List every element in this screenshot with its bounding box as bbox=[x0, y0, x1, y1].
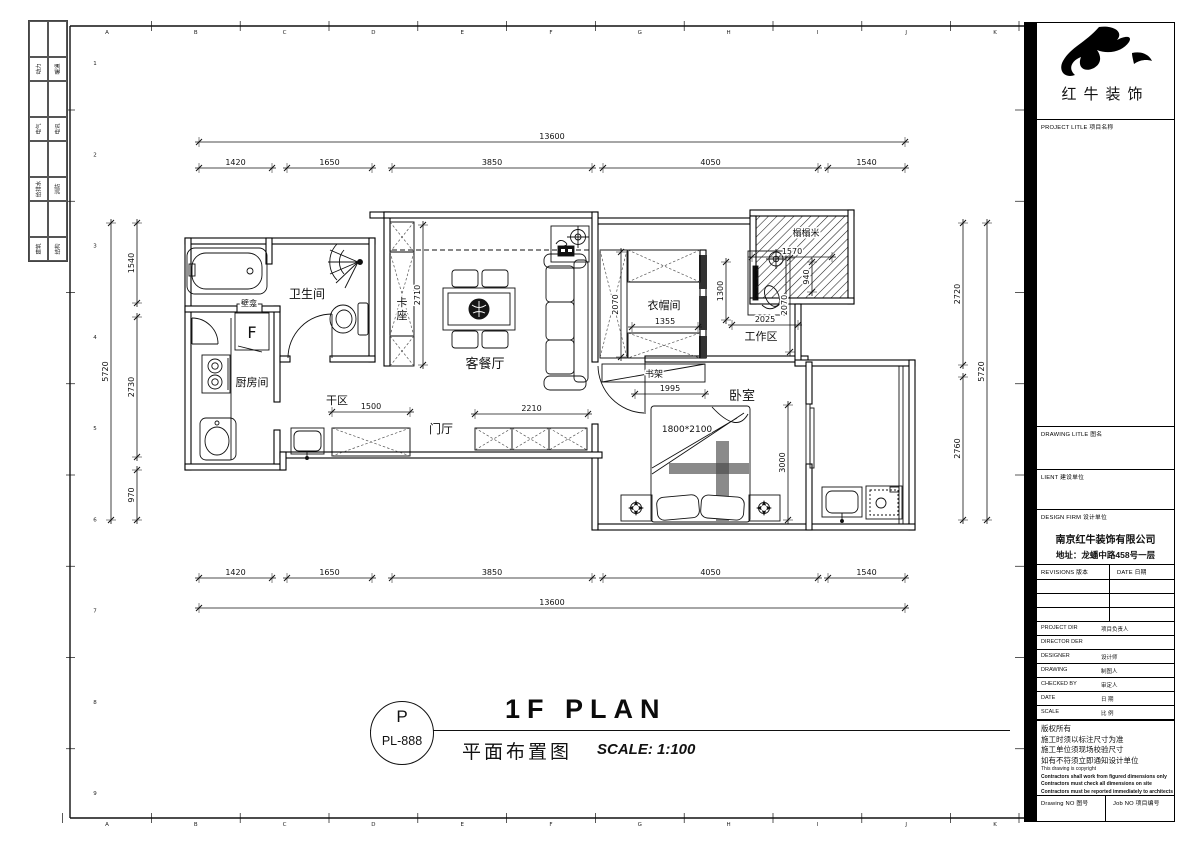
dimension-label: 2710 bbox=[413, 285, 422, 305]
room-label: F bbox=[247, 323, 256, 342]
plan-title: 1F PLAN bbox=[505, 694, 667, 725]
room-label: 衣帽间 bbox=[648, 298, 681, 312]
ruler-letter: A bbox=[105, 30, 109, 36]
dimension: 2730 bbox=[127, 313, 142, 461]
room-label: 客餐厅 bbox=[465, 356, 504, 372]
notes-chinese: 版权所有施工时须以标注尺寸为准施工单位须现场校验尺寸如有不符须立即通知设计单位 bbox=[1037, 721, 1174, 766]
note-line: 施工单位须现场校验尺寸 bbox=[1041, 745, 1174, 756]
bathtub bbox=[187, 248, 267, 294]
logo-cell: 红牛装饰 bbox=[1037, 23, 1174, 119]
dimension-label: 3850 bbox=[482, 158, 502, 167]
design-firm-label: DESIGN FIRM 设计单位 bbox=[1037, 510, 1174, 521]
drawing-sheet: 1360014201650385040501540142016503850405… bbox=[0, 0, 1200, 845]
nightstand bbox=[749, 495, 780, 521]
bed bbox=[651, 406, 750, 522]
dimension-label: 2210 bbox=[521, 404, 541, 413]
room-label: 工作区 bbox=[745, 330, 778, 343]
ruler-number: 2 bbox=[93, 152, 97, 158]
ceiling-lamp-icon bbox=[567, 226, 589, 248]
signoff-rows: PROJECT DIR项目负责人DIRECTOR DERDESIGNER设计师D… bbox=[1037, 621, 1174, 719]
strip-cell: 电讯 bbox=[48, 117, 67, 141]
revision-row bbox=[1037, 607, 1174, 621]
strip-blank-row bbox=[29, 21, 67, 57]
dimension-label: 2720 bbox=[953, 284, 962, 304]
signoff-row: SCALE比 例 bbox=[1037, 705, 1174, 719]
dimension: 1540 bbox=[824, 568, 909, 583]
ruler-letter: K bbox=[993, 30, 997, 36]
ruler-letter: F bbox=[549, 822, 552, 828]
room-label: 干区 bbox=[326, 394, 348, 407]
signoff-row: CHECKED BY审定人 bbox=[1037, 677, 1174, 691]
strip-cell: 消防 bbox=[48, 177, 67, 201]
ruler-number: 1 bbox=[93, 61, 97, 67]
plan-subtitle: 平面布置图 bbox=[462, 737, 572, 764]
strip-label-row: 电气电讯 bbox=[29, 117, 67, 141]
ruler-letter: B bbox=[194, 30, 198, 36]
drawing-title-cell: DRAWING LITLE 图名 bbox=[1037, 426, 1174, 469]
brand-name: 红牛装饰 bbox=[1037, 83, 1174, 104]
dimension-label: 5720 bbox=[977, 361, 986, 381]
dimension: 2760 bbox=[953, 373, 968, 524]
revisions-header: REVISIONS 版本 DATE 日期 bbox=[1037, 564, 1174, 579]
dimension-label: 1650 bbox=[319, 158, 339, 167]
drawing-no-label: Drawing NO 图号 bbox=[1037, 796, 1088, 807]
dimension-label: 2070 bbox=[780, 295, 789, 315]
dimension-label: 1650 bbox=[319, 568, 339, 577]
dimension: 1995 bbox=[631, 384, 709, 399]
sheet-right-band bbox=[1024, 22, 1036, 822]
ruler-letter: D bbox=[371, 30, 375, 36]
dimension-label: 1300 bbox=[716, 281, 725, 301]
dimension: 3850 bbox=[388, 568, 596, 583]
project-title-label: PROJECT LITLE 项目名称 bbox=[1037, 120, 1174, 131]
rednbull-logo-icon bbox=[1037, 23, 1176, 81]
strip-label-row: 建筑结构 bbox=[29, 237, 67, 261]
note-line-en: This drawing is copyright bbox=[1037, 766, 1174, 774]
dimension: 2070 bbox=[611, 248, 626, 361]
room-label: 书架 bbox=[645, 369, 663, 380]
plan-code-letter: P bbox=[371, 707, 433, 727]
ruler-number: 5 bbox=[93, 426, 97, 432]
dimension-label: 3000 bbox=[778, 452, 787, 472]
dimension: 5720 bbox=[101, 219, 116, 524]
dimension-label: 13600 bbox=[539, 598, 564, 607]
client-cell: LIENT 建设单位 bbox=[1037, 469, 1174, 509]
dimension-label: 1995 bbox=[660, 384, 680, 393]
room-label: 卧室 bbox=[729, 388, 755, 404]
ruler-letter: H bbox=[727, 822, 731, 828]
ruler-letter: H bbox=[727, 30, 731, 36]
dimension: 2025 bbox=[728, 315, 802, 330]
ruler-letter: E bbox=[460, 822, 464, 828]
plan-code-stamp: P PL-888 bbox=[370, 701, 434, 765]
dimension: 3850 bbox=[388, 158, 596, 173]
ruler-letter: G bbox=[638, 822, 642, 828]
ruler-letter: J bbox=[904, 30, 907, 36]
signoff-row: PROJECT DIR项目负责人 bbox=[1037, 621, 1174, 635]
strip-cell: 暖通 bbox=[48, 57, 67, 81]
dimension: 2720 bbox=[953, 219, 968, 369]
date-col-label: DATE 日期 bbox=[1113, 565, 1147, 576]
strip-cell: 动力 bbox=[29, 57, 48, 81]
revision-row bbox=[1037, 579, 1174, 593]
dimension: 1650 bbox=[283, 568, 376, 583]
dimension: 5720 bbox=[977, 219, 992, 524]
dimension: 1540 bbox=[127, 219, 142, 307]
nightstand bbox=[621, 495, 652, 521]
dimension-label: 5720 bbox=[101, 361, 110, 381]
ruler-letter: I bbox=[817, 822, 819, 828]
plan-code: PL-888 bbox=[371, 734, 433, 748]
dimension: 13600 bbox=[195, 132, 909, 147]
dimension: 2210 bbox=[471, 404, 592, 419]
dimension-label: 1420 bbox=[225, 158, 245, 167]
ruler-letter: J bbox=[904, 822, 907, 828]
revisions-label: REVISIONS 版本 bbox=[1037, 565, 1088, 576]
washing-machine bbox=[866, 486, 902, 519]
design-firm-cell: DESIGN FIRM 设计单位 南京红牛装饰有限公司 地址：龙蟠中路458号一… bbox=[1037, 509, 1174, 564]
dimension-label: 2025 bbox=[755, 315, 775, 324]
strip-blank-row bbox=[29, 201, 67, 237]
balcony-sink bbox=[822, 487, 862, 523]
ruler-number: 7 bbox=[93, 609, 97, 615]
dimension: 1420 bbox=[195, 568, 276, 583]
strip-cell: 建筑 bbox=[29, 237, 48, 261]
ruler-number: 6 bbox=[93, 517, 97, 523]
ruler-letter: B bbox=[194, 822, 198, 828]
dimension-label: 4050 bbox=[700, 568, 720, 577]
dimension-label: 2760 bbox=[953, 438, 962, 458]
client-label: LIENT 建设单位 bbox=[1037, 470, 1174, 481]
dimension-label: 13600 bbox=[539, 132, 564, 141]
dimension: 1355 bbox=[628, 317, 702, 332]
ruler-letter: F bbox=[549, 30, 552, 36]
strip-blank-row bbox=[29, 141, 67, 177]
ruler-letter: C bbox=[283, 822, 287, 828]
ruler-letter: A bbox=[105, 822, 109, 828]
room-label: 1800*2100 bbox=[662, 425, 713, 435]
dimension-label: 2730 bbox=[127, 377, 136, 397]
ruler-number: 4 bbox=[93, 335, 97, 341]
strip-cell: 结构 bbox=[48, 237, 67, 261]
note-line: 施工时须以标注尺寸为准 bbox=[1041, 735, 1174, 746]
note-line: 如有不符须立即通知设计单位 bbox=[1041, 756, 1174, 767]
dimension: 1540 bbox=[824, 158, 909, 173]
revision-row bbox=[1037, 593, 1174, 607]
ruler-letter: C bbox=[283, 30, 287, 36]
dimension-label: 970 bbox=[127, 487, 136, 502]
dimension: 970 bbox=[127, 466, 142, 524]
signoff-row: DESIGNER设计师 bbox=[1037, 649, 1174, 663]
company-address: 地址：龙蟠中路458号一层 bbox=[1037, 549, 1174, 561]
strip-label-row: 动力暖通 bbox=[29, 57, 67, 81]
dining-set bbox=[443, 270, 515, 348]
room-label: 卫生间 bbox=[289, 287, 325, 301]
dimension-label: 1355 bbox=[655, 317, 675, 326]
dimension-label: 940 bbox=[802, 269, 811, 284]
room-label: 厨房间 bbox=[236, 376, 269, 389]
dimension: 1300 bbox=[716, 258, 731, 324]
dimension-label: 3850 bbox=[482, 568, 502, 577]
note-line-en: Contractors must check all dimensions on… bbox=[1037, 781, 1174, 789]
ruler-number: 8 bbox=[93, 700, 97, 706]
signoff-row: DIRECTOR DER bbox=[1037, 635, 1174, 649]
strip-label-row: 给排水消防 bbox=[29, 177, 67, 201]
bedroom-door bbox=[598, 362, 645, 414]
job-no-label: Job NO 项目编号 bbox=[1109, 796, 1160, 807]
ruler-number: 3 bbox=[93, 244, 97, 250]
company-name: 南京红牛装饰有限公司 bbox=[1037, 531, 1174, 546]
dimension: 4050 bbox=[599, 568, 822, 583]
dimension: 1420 bbox=[195, 158, 276, 173]
room-label: 壁龛 bbox=[241, 298, 257, 308]
drawing-title-label: DRAWING LITLE 图名 bbox=[1037, 427, 1174, 438]
ruler-letter: G bbox=[638, 30, 642, 36]
title-block: 红牛装饰 PROJECT LITLE 项目名称 DRAWING LITLE 图名… bbox=[1036, 22, 1175, 822]
notes-english: This drawing is copyrightContractors sha… bbox=[1037, 766, 1174, 796]
dimension-label: 1420 bbox=[225, 568, 245, 577]
ruler-number: 9 bbox=[93, 791, 97, 797]
stove bbox=[202, 355, 230, 393]
signoff-row: DRAWING制图人 bbox=[1037, 663, 1174, 677]
drawing-no-cell: Drawing NO 图号 Job NO 项目编号 bbox=[1037, 795, 1174, 822]
plan-scale: SCALE: 1:100 bbox=[597, 741, 695, 758]
notes-cell: 版权所有施工时须以标注尺寸为准施工单位须现场校验尺寸如有不符须立即通知设计单位 … bbox=[1037, 719, 1174, 795]
dimension-label: 1540 bbox=[127, 253, 136, 273]
title-underline bbox=[370, 730, 1010, 731]
dimension: 13600 bbox=[195, 598, 909, 613]
project-title-cell: PROJECT LITLE 项目名称 bbox=[1037, 119, 1174, 426]
dimension-label: 1540 bbox=[856, 568, 876, 577]
dimension: 1650 bbox=[283, 158, 376, 173]
dimension-label: 1500 bbox=[361, 402, 381, 411]
dimension: 2710 bbox=[413, 221, 428, 369]
room-label: 卡座 bbox=[397, 296, 408, 322]
kitchen-corner-unit bbox=[192, 318, 218, 344]
balcony-sliding-door bbox=[806, 366, 903, 524]
ruler-letter: I bbox=[817, 30, 819, 36]
signoff-row: DATE日 期 bbox=[1037, 691, 1174, 705]
strip-blank-row bbox=[29, 81, 67, 117]
discipline-signoff-strip: 动力暖通电气电讯给排水消防建筑结构 bbox=[28, 20, 68, 262]
room-label: 门厅 bbox=[429, 421, 453, 436]
dimension-label: 1570 bbox=[782, 247, 802, 256]
ruler-letter: K bbox=[993, 822, 997, 828]
ruler-letter: E bbox=[460, 30, 464, 36]
ruler-letter: D bbox=[371, 822, 375, 828]
note-line-en: Contractors shall work from figured dime… bbox=[1037, 774, 1174, 782]
strip-cell: 电气 bbox=[29, 117, 48, 141]
sofa bbox=[544, 254, 588, 390]
shower-icon bbox=[328, 244, 363, 288]
strip-cell: 给排水 bbox=[29, 177, 48, 201]
room-label: 榻榻米 bbox=[792, 227, 819, 239]
note-line: 版权所有 bbox=[1041, 724, 1174, 735]
toilet bbox=[330, 303, 368, 335]
dimension-label: 2070 bbox=[611, 294, 620, 314]
dimension: 4050 bbox=[599, 158, 822, 173]
dimension-label: 1540 bbox=[856, 158, 876, 167]
dimension-label: 4050 bbox=[700, 158, 720, 167]
bathroom-door bbox=[288, 314, 332, 358]
